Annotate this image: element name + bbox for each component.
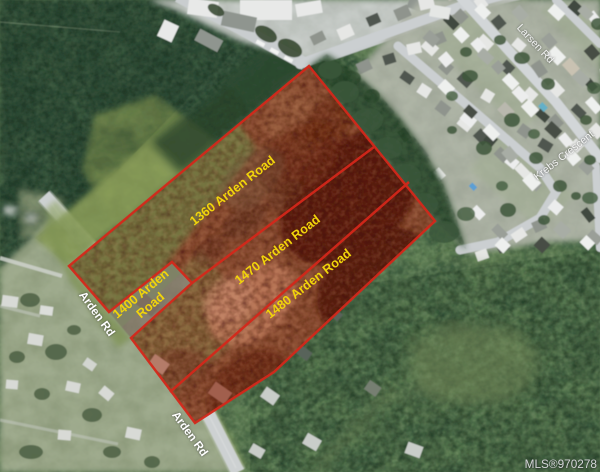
- svg-text:MLS®970278: MLS®970278: [525, 457, 598, 471]
